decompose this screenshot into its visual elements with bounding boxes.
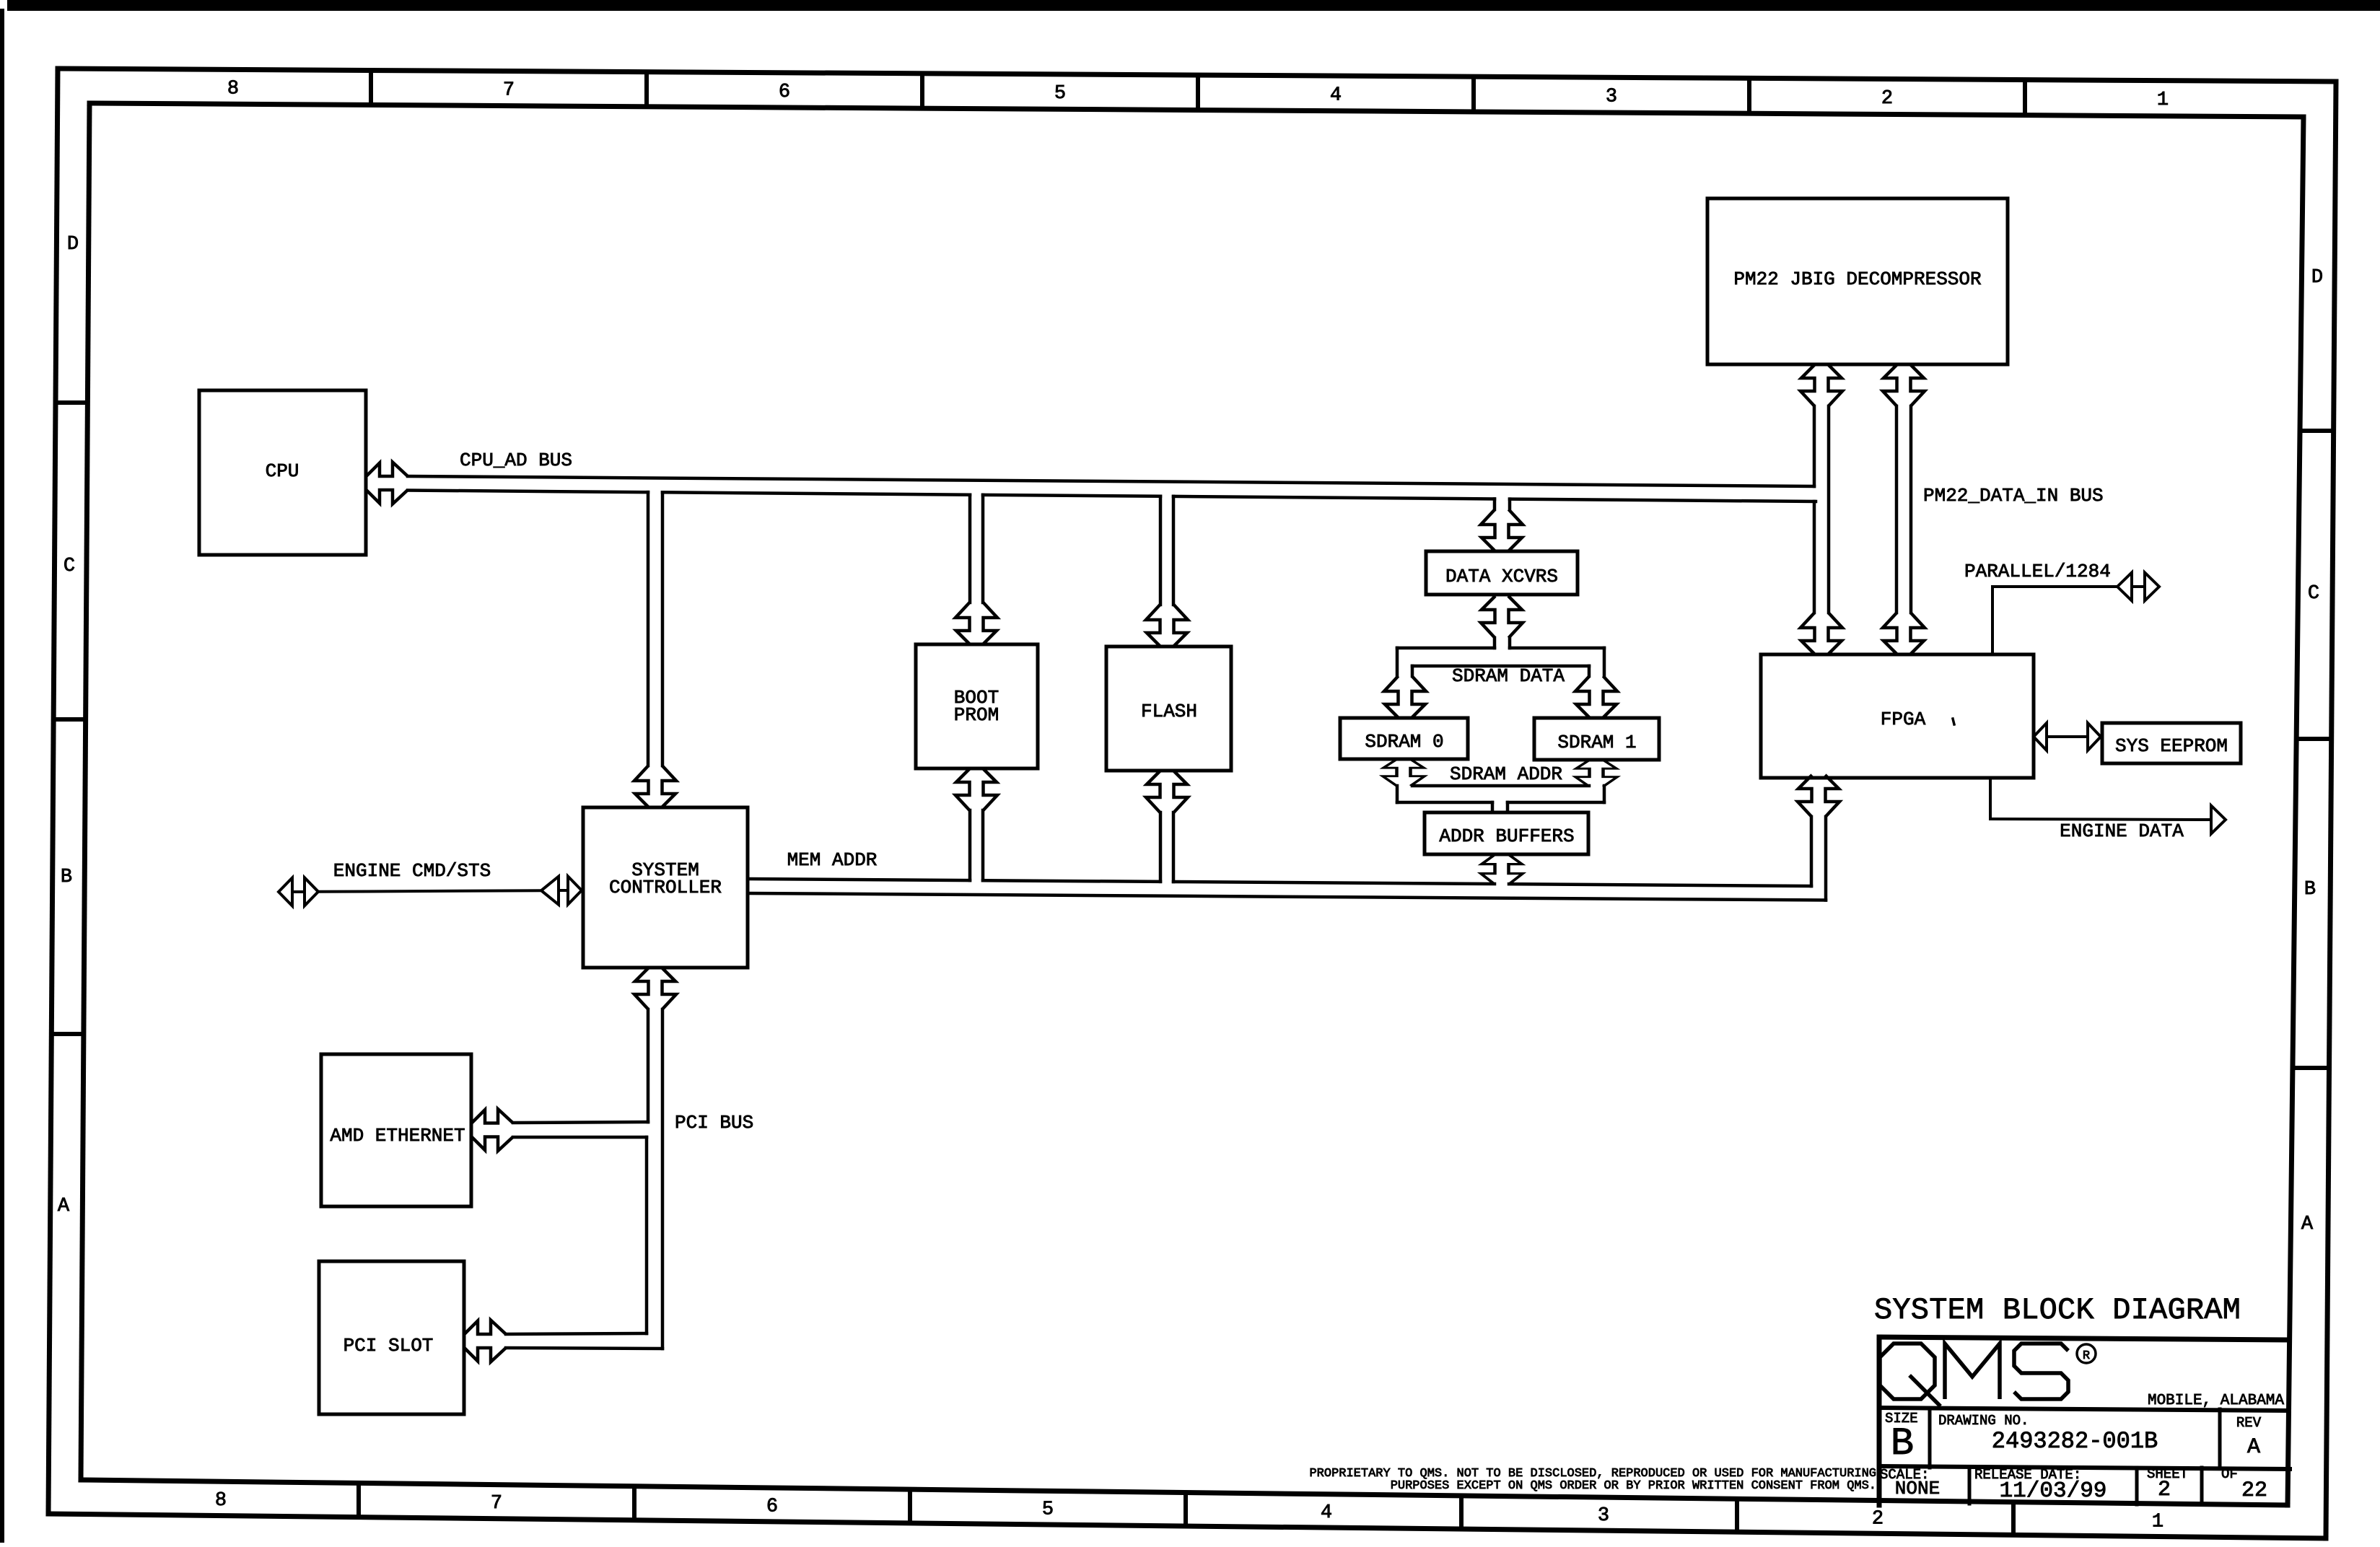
svg-text:C: C: [2308, 583, 2319, 605]
svg-text:A: A: [2301, 1214, 2314, 1235]
svg-text:R: R: [2083, 1349, 2090, 1363]
svg-text:2: 2: [1881, 88, 1893, 110]
svg-text:1: 1: [2152, 1512, 2164, 1533]
svg-text:SYSTEM BLOCK DIAGRAM: SYSTEM BLOCK DIAGRAM: [1874, 1293, 2241, 1328]
svg-text:ENGINE DATA: ENGINE DATA: [2060, 820, 2184, 842]
svg-text:SDRAM 1: SDRAM 1: [1557, 732, 1636, 753]
svg-text:6: 6: [766, 1496, 778, 1517]
svg-text:PROM: PROM: [954, 704, 999, 726]
svg-text:SYS EEPROM: SYS EEPROM: [2115, 735, 2228, 757]
svg-text:CPU_AD BUS: CPU_AD BUS: [460, 450, 572, 471]
svg-text:B: B: [2304, 879, 2316, 900]
svg-text:SDRAM DATA: SDRAM DATA: [1452, 665, 1565, 687]
svg-text:ENGINE CMD/STS: ENGINE CMD/STS: [333, 860, 491, 882]
svg-text:4: 4: [1330, 84, 1342, 106]
svg-text:5: 5: [1054, 83, 1066, 105]
svg-text:PCI BUS: PCI BUS: [675, 1112, 753, 1134]
svg-text:OF: OF: [2221, 1466, 2238, 1482]
svg-text:A: A: [2247, 1435, 2260, 1460]
svg-text:3: 3: [1598, 1505, 1609, 1527]
svg-text:DRAWING NO.: DRAWING NO.: [1938, 1413, 2029, 1429]
svg-text:22: 22: [2241, 1478, 2267, 1503]
svg-text:NONE: NONE: [1895, 1478, 1940, 1499]
svg-text:3: 3: [1606, 87, 1617, 108]
svg-text:SDRAM ADDR: SDRAM ADDR: [1450, 763, 1562, 785]
svg-text:8: 8: [227, 78, 239, 100]
svg-text:MOBILE, ALABAMA: MOBILE, ALABAMA: [2148, 1393, 2284, 1409]
svg-text:C: C: [64, 556, 75, 577]
svg-text:PARALLEL/1284: PARALLEL/1284: [1964, 561, 2111, 582]
svg-text:PCI SLOT: PCI SLOT: [344, 1335, 434, 1357]
svg-text:D: D: [67, 234, 79, 255]
svg-text:4: 4: [1321, 1502, 1332, 1524]
svg-text:D: D: [2311, 267, 2323, 289]
svg-text:8: 8: [215, 1490, 227, 1512]
svg-text:SDRAM 0: SDRAM 0: [1365, 731, 1443, 753]
svg-text:FLASH: FLASH: [1141, 701, 1197, 722]
svg-text:11/03/99: 11/03/99: [2000, 1478, 2107, 1504]
svg-text:6: 6: [779, 82, 790, 103]
svg-text:DATA XCVRS: DATA XCVRS: [1445, 566, 1558, 587]
svg-text:2: 2: [1872, 1508, 1884, 1530]
svg-text:PM22_DATA_IN BUS: PM22_DATA_IN BUS: [1923, 485, 2104, 507]
svg-text:5: 5: [1042, 1499, 1054, 1521]
svg-text:2: 2: [2158, 1478, 2171, 1502]
svg-text:PURPOSES EXCEPT ON QMS ORDER O: PURPOSES EXCEPT ON QMS ORDER OR BY PRIOR…: [1391, 1479, 1876, 1493]
svg-text:CPU: CPU: [266, 460, 299, 482]
svg-text:PM22 JBIG DECOMPRESSOR: PM22 JBIG DECOMPRESSOR: [1733, 268, 1981, 290]
svg-text:CONTROLLER: CONTROLLER: [609, 877, 722, 898]
svg-text:ADDR BUFFERS: ADDR BUFFERS: [1439, 825, 1574, 847]
svg-text:AMD ETHERNET: AMD ETHERNET: [330, 1125, 465, 1147]
svg-text:7: 7: [491, 1493, 502, 1515]
svg-text:FPGA: FPGA: [1881, 709, 1926, 730]
svg-text:2493282-001B: 2493282-001B: [1992, 1428, 2158, 1455]
svg-text:1: 1: [2157, 89, 2169, 111]
svg-text:REV: REV: [2236, 1415, 2262, 1431]
svg-text:B: B: [61, 867, 72, 888]
svg-text:B: B: [1891, 1422, 1914, 1466]
svg-text:7: 7: [503, 80, 515, 102]
svg-text:A: A: [58, 1196, 70, 1217]
svg-text:MEM ADDR: MEM ADDR: [787, 849, 878, 871]
